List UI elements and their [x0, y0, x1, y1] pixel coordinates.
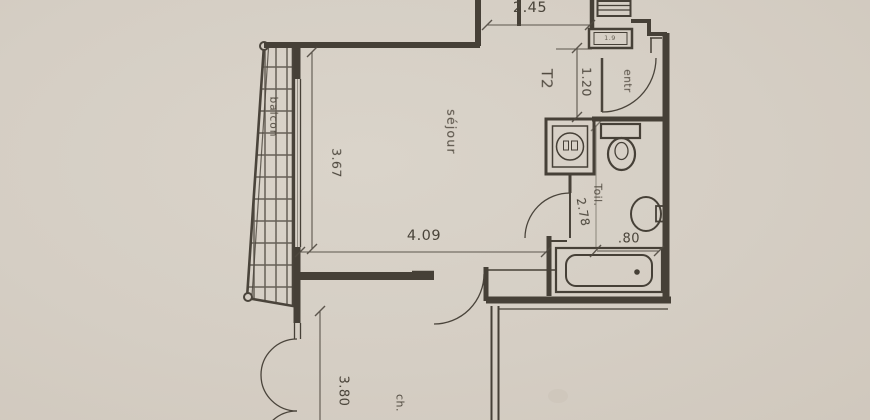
- dim-kitchen-width: 2.45: [513, 1, 547, 16]
- fixtures: [546, 119, 665, 292]
- label-balcony: balcon: [268, 97, 279, 138]
- entrance-north-wall: [631, 21, 667, 34]
- bedroom-window-frame: [295, 323, 301, 339]
- closet-shelves-box: [598, 1, 631, 16]
- closet-mark: 1.9: [604, 35, 616, 42]
- paper-stain: [548, 389, 568, 403]
- closet-shelf-lines: [598, 6, 630, 11]
- bedroom-door-icon: [434, 274, 484, 324]
- floor-plan-photo: 2.45 1.9 T2 entr 1.20 balcon séjour 3.67…: [0, 0, 870, 420]
- walls: [264, 0, 671, 420]
- bathtub-drain: [634, 269, 640, 275]
- label-living-room: séjour: [445, 109, 458, 155]
- bathroom-door-icon: [525, 193, 570, 238]
- dim-bedroom-width: 3.80: [337, 376, 350, 407]
- entrance-notch: [650, 38, 662, 53]
- dim-entry-width: 1.20: [580, 67, 593, 97]
- dim-living-width: 4.09: [407, 229, 441, 244]
- label-toilet: Toil.: [592, 184, 603, 207]
- unit-type-label: T2: [538, 69, 554, 89]
- dim-bathtub-width: .80: [618, 233, 640, 246]
- toilet-icon: [601, 124, 640, 170]
- bedroom-east-wall: [492, 306, 499, 420]
- plan-linework: [0, 0, 870, 420]
- label-bedroom: ch.: [395, 394, 406, 412]
- balcony-post-marker: [244, 293, 252, 301]
- wash-basin-icon: [631, 197, 665, 231]
- french-window-icon: [261, 339, 297, 420]
- washing-machine-icon: [546, 119, 594, 174]
- bathtub-icon: [556, 248, 662, 292]
- balcony-grid-hatch: [244, 40, 294, 310]
- label-entrance: entr: [622, 69, 633, 93]
- dimension-lines: [295, 20, 664, 420]
- balcony: [244, 40, 294, 310]
- dim-living-depth: 3.67: [330, 148, 343, 178]
